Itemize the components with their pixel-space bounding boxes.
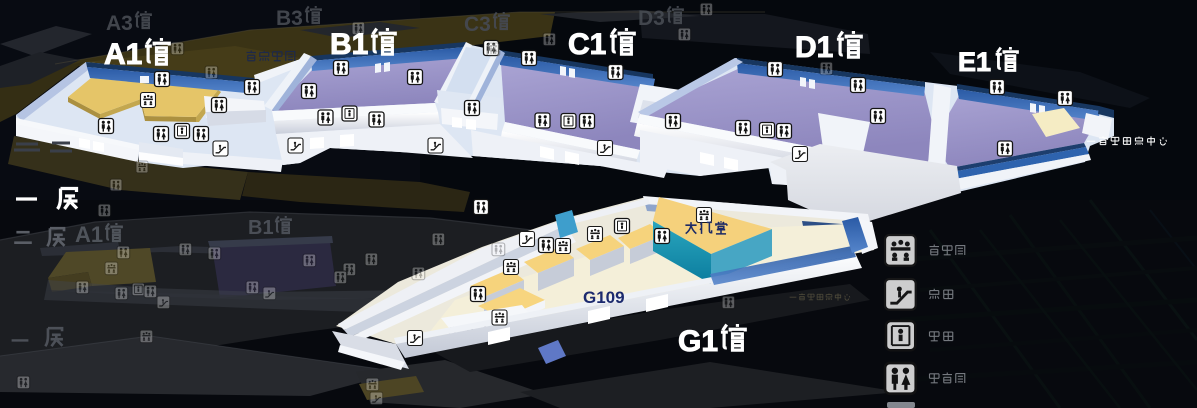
svg-text:A1: A1: [104, 38, 142, 71]
svg-text:B3: B3: [276, 7, 303, 30]
svg-text:B1: B1: [330, 28, 368, 61]
svg-text:A1: A1: [75, 222, 103, 247]
svg-text:C1: C1: [568, 28, 606, 61]
svg-text:C3: C3: [464, 13, 491, 36]
svg-text:D3: D3: [638, 7, 665, 30]
svg-text:B1: B1: [248, 217, 274, 239]
svg-text:G109: G109: [583, 288, 625, 307]
svg-text:D1: D1: [795, 31, 833, 64]
svg-text:E1: E1: [958, 47, 991, 77]
svg-text:G1: G1: [678, 325, 718, 358]
svg-text:A3: A3: [106, 12, 133, 35]
